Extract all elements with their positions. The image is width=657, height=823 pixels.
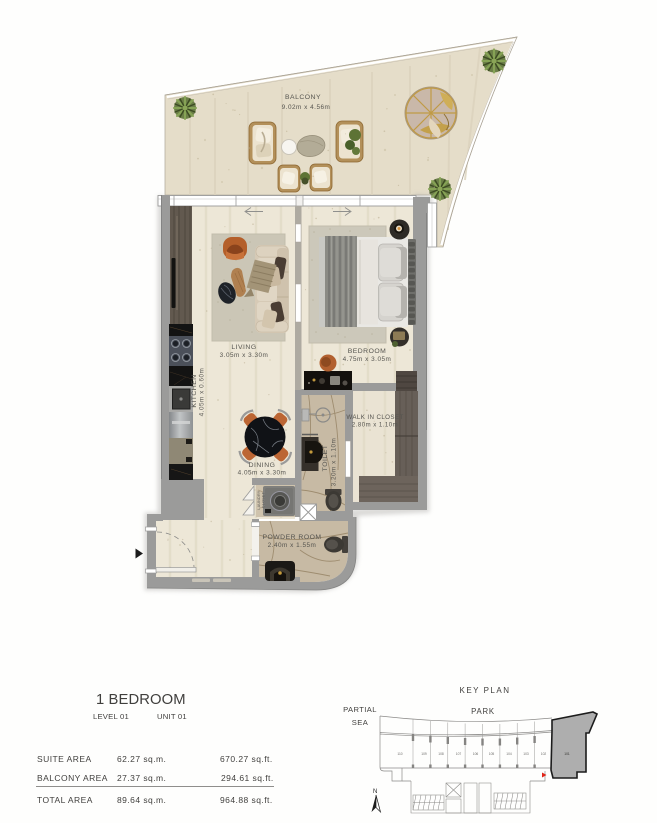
svg-text:27.37 sq.m.: 27.37 sq.m. xyxy=(117,773,166,783)
svg-text:9.02m x 4.56m: 9.02m x 4.56m xyxy=(282,104,331,111)
svg-text:TOILET: TOILET xyxy=(322,445,329,472)
svg-text:110: 110 xyxy=(397,752,402,756)
svg-text:89.64 sq.m.: 89.64 sq.m. xyxy=(117,795,166,805)
svg-text:106: 106 xyxy=(473,752,479,756)
svg-text:109: 109 xyxy=(421,752,427,756)
svg-text:104: 104 xyxy=(506,752,512,756)
svg-text:TOTAL AREA: TOTAL AREA xyxy=(37,795,93,805)
svg-text:62.27 sq.m.: 62.27 sq.m. xyxy=(117,754,166,764)
svg-text:KITCHEN: KITCHEN xyxy=(191,374,198,407)
svg-text:108: 108 xyxy=(438,752,444,756)
svg-text:1 BEDROOM: 1 BEDROOM xyxy=(96,692,186,708)
svg-text:LEVEL 01: LEVEL 01 xyxy=(93,712,129,721)
svg-text:103: 103 xyxy=(523,752,529,756)
svg-text:WALK IN CLOSET: WALK IN CLOSET xyxy=(346,414,403,421)
svg-text:2.80m x 1.10m: 2.80m x 1.10m xyxy=(352,423,398,429)
svg-text:BALCONY AREA: BALCONY AREA xyxy=(37,773,108,783)
svg-text:N: N xyxy=(373,789,377,795)
svg-text:3.05m x 3.30m: 3.05m x 3.30m xyxy=(220,352,269,359)
svg-text:3.20m x 1.10m: 3.20m x 1.10m xyxy=(331,438,338,487)
svg-text:101: 101 xyxy=(564,752,570,756)
svg-text:POWDER ROOM: POWDER ROOM xyxy=(262,534,321,541)
svg-text:4.05m x 3.30m: 4.05m x 3.30m xyxy=(238,470,287,477)
svg-text:4.75m x 3.05m: 4.75m x 3.05m xyxy=(343,356,392,363)
svg-text:CLOSET: CLOSET xyxy=(262,491,266,508)
svg-text:BALCONY: BALCONY xyxy=(285,94,321,101)
svg-text:4.05m x 0.60m: 4.05m x 0.60m xyxy=(199,368,206,417)
svg-text:2.40m x 1.55m: 2.40m x 1.55m xyxy=(268,542,317,549)
svg-text:670.27 sq.ft.: 670.27 sq.ft. xyxy=(220,754,273,764)
svg-text:964.88 sq.ft.: 964.88 sq.ft. xyxy=(220,795,273,805)
svg-text:LAUNDRY: LAUNDRY xyxy=(257,490,261,510)
svg-text:SUITE AREA: SUITE AREA xyxy=(37,754,92,764)
svg-text:PARK: PARK xyxy=(471,707,495,716)
svg-text:294.61 sq.ft.: 294.61 sq.ft. xyxy=(221,773,274,783)
svg-text:LIVING: LIVING xyxy=(231,344,256,351)
svg-text:SEA: SEA xyxy=(352,718,369,727)
svg-text:107: 107 xyxy=(456,752,462,756)
svg-text:102: 102 xyxy=(541,752,547,756)
svg-text:PARTIAL: PARTIAL xyxy=(343,705,377,714)
svg-text:UNIT 01: UNIT 01 xyxy=(157,712,187,721)
svg-text:BEDROOM: BEDROOM xyxy=(348,348,387,355)
svg-text:DINING: DINING xyxy=(249,462,276,469)
svg-text:KEY PLAN: KEY PLAN xyxy=(460,686,511,695)
svg-text:105: 105 xyxy=(489,752,495,756)
